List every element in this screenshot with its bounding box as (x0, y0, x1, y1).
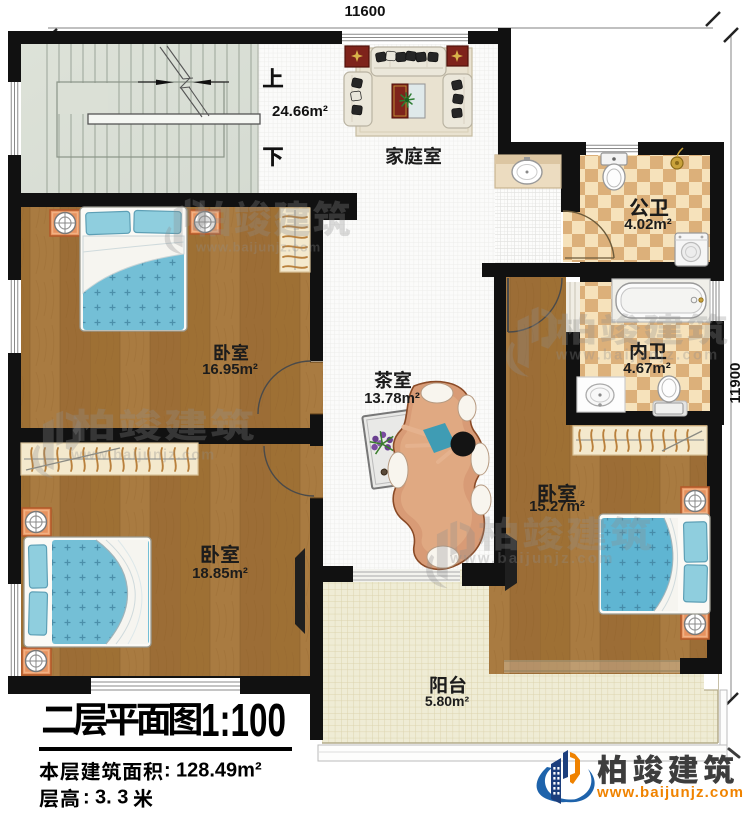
svg-text:15.27m²: 15.27m² (529, 498, 585, 515)
svg-text:16.95m²: 16.95m² (202, 361, 258, 378)
svg-text:11600: 11600 (345, 3, 386, 20)
svg-text:18.85m²: 18.85m² (192, 565, 248, 582)
svg-text:www.baijunjz.com: www.baijunjz.com (596, 784, 744, 801)
svg-text:www.baijunjz.com: www.baijunjz.com (70, 447, 215, 463)
svg-text:www.baijunjz.com: www.baijunjz.com (555, 347, 720, 363)
svg-text:www.baijunjz.com: www.baijunjz.com (195, 239, 321, 254)
svg-text::: : (83, 786, 90, 808)
svg-text:4.02m²: 4.02m² (624, 216, 672, 233)
svg-text:24.66m²: 24.66m² (272, 103, 328, 120)
svg-text:1:100: 1:100 (201, 694, 286, 746)
svg-text:128.49m²: 128.49m² (176, 759, 262, 781)
svg-text:13.78m²: 13.78m² (364, 390, 420, 407)
svg-text:3. 3: 3. 3 (95, 786, 128, 808)
svg-text::: : (164, 759, 171, 781)
svg-text:5.80m²: 5.80m² (425, 693, 470, 709)
svg-text:11900: 11900 (727, 363, 744, 404)
svg-text:www.baijunjz.com: www.baijunjz.com (449, 550, 615, 567)
